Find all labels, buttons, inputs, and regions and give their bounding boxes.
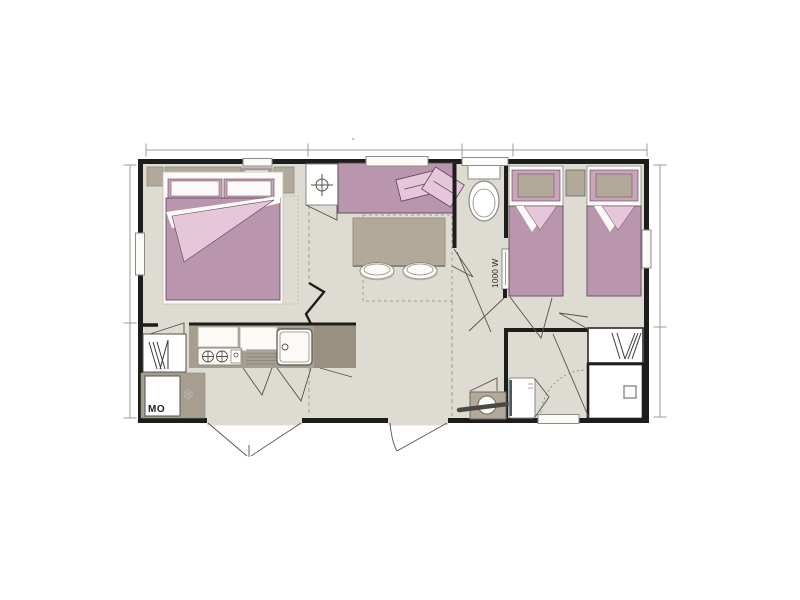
hob <box>198 348 242 365</box>
reference-dot <box>352 138 354 140</box>
counter-right-shadow <box>314 326 356 368</box>
second-opening <box>388 415 448 426</box>
entrance-door-swings <box>208 423 447 457</box>
floorplan-svg: 1000 W <box>0 0 800 600</box>
cabinet-front <box>240 327 277 351</box>
window-wc-top <box>462 158 508 166</box>
nightstand <box>566 170 585 196</box>
toilet-tank <box>468 164 500 179</box>
bathroom-wardrobe <box>588 328 643 363</box>
microwave-label: MO <box>148 404 165 415</box>
freezer-snowflake-icon: ❄ <box>182 387 195 404</box>
window-left-wall <box>136 233 145 275</box>
window-sofa-top <box>366 157 428 167</box>
cabinet-front <box>198 327 238 347</box>
pillow <box>171 181 219 196</box>
shower <box>588 364 643 419</box>
shower-fixture <box>624 386 636 398</box>
heater-wattage-label: 1000 W <box>490 259 500 288</box>
stool <box>403 263 437 280</box>
living-area <box>338 163 464 280</box>
headboard-cabinet <box>147 167 163 186</box>
pillow <box>518 174 554 197</box>
window-right-wall <box>642 230 651 268</box>
entrance-opening <box>207 415 302 426</box>
window-bathroom-bottom <box>538 415 579 424</box>
fridge-unit: MO ❄ <box>141 373 205 418</box>
double-bed <box>163 172 283 304</box>
single-bed-right <box>587 166 641 296</box>
stool <box>360 263 394 280</box>
hob-control-panel <box>231 350 241 363</box>
sink-drain <box>282 344 288 350</box>
pillow <box>227 181 271 196</box>
master-bedroom <box>147 167 294 304</box>
window-bedroom1-top <box>243 159 272 167</box>
pillow <box>596 174 632 197</box>
floorplan-page: 1000 W <box>0 0 800 600</box>
dining-table <box>353 218 445 266</box>
water-heater-cabinet <box>509 378 535 418</box>
single-bed-left <box>509 166 563 296</box>
sink <box>277 329 312 365</box>
